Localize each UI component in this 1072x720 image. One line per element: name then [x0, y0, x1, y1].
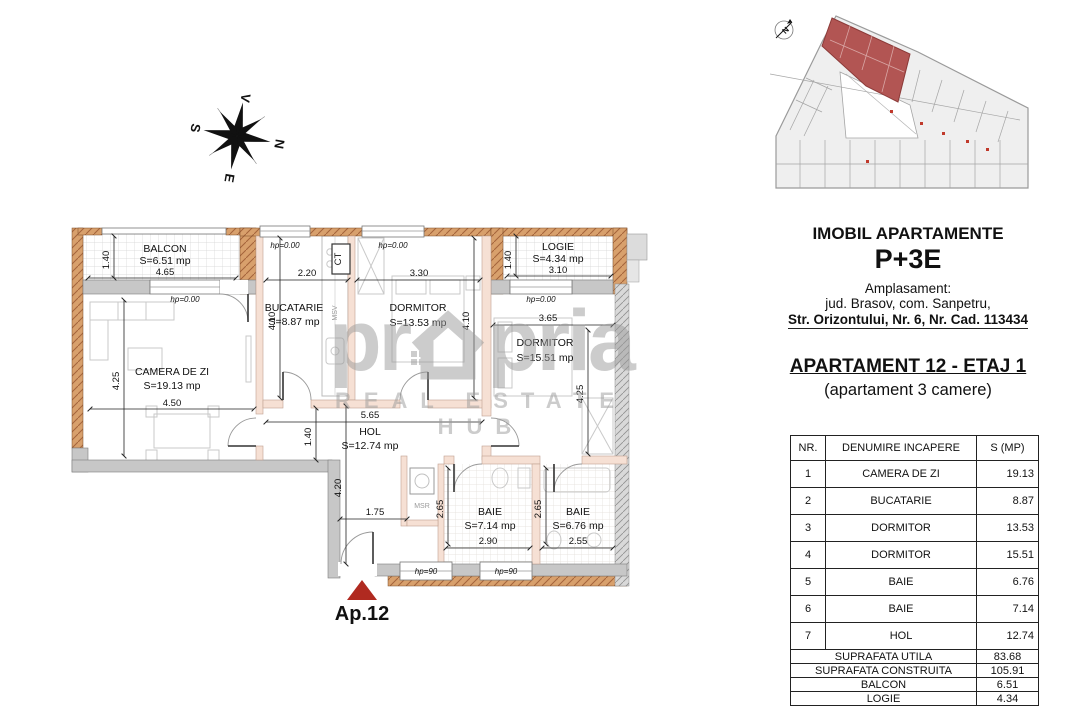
apartment-title-block: APARTAMENT 12 - ETAJ 1 (apartament 3 cam… — [758, 356, 1058, 400]
svg-text:2.65: 2.65 — [435, 500, 446, 519]
svg-text:4.50: 4.50 — [163, 398, 182, 409]
summary-row-logie: LOGIE4.34 — [791, 692, 1039, 706]
header-nr: NR. — [791, 436, 826, 461]
compass-east-label: E — [221, 173, 237, 184]
svg-text:hp=90: hp=90 — [415, 567, 438, 576]
apartment-subtitle: (apartament 3 camere) — [758, 381, 1058, 400]
svg-text:4.25: 4.25 — [575, 385, 586, 404]
svg-text:hp=0.00: hp=0.00 — [526, 295, 556, 304]
svg-text:S=7.14 mp: S=7.14 mp — [464, 520, 515, 532]
svg-text:2.65: 2.65 — [533, 500, 544, 519]
compass-rose-icon: V S N E — [185, 90, 295, 190]
location-line1: jud. Brasov, com. Sanpetru, — [758, 296, 1058, 311]
svg-text:S=15.51 mp: S=15.51 mp — [517, 352, 574, 364]
svg-text:S=6.76 mp: S=6.76 mp — [552, 520, 603, 532]
svg-text:1.75: 1.75 — [366, 507, 385, 518]
header-area: S (MP) — [977, 436, 1039, 461]
svg-text:4.65: 4.65 — [156, 267, 175, 278]
compass-west-label: V — [237, 93, 253, 104]
svg-text:BAIE: BAIE — [478, 506, 502, 518]
svg-text:S=19.13 mp: S=19.13 mp — [144, 380, 201, 392]
table-row: 3DORMITOR13.53 — [791, 515, 1039, 542]
svg-text:N: N — [780, 25, 791, 36]
svg-text:2.20: 2.20 — [298, 268, 317, 279]
svg-text:LOGIE: LOGIE — [542, 241, 574, 253]
svg-text:hp=0.00: hp=0.00 — [378, 241, 408, 250]
compass-north-label: N — [271, 138, 287, 150]
svg-text:BAIE: BAIE — [566, 506, 590, 518]
site-north-icon: N — [775, 19, 793, 39]
svg-text:4.10: 4.10 — [267, 312, 278, 331]
location-label: Amplasament: — [758, 281, 1058, 296]
svg-text:4.10: 4.10 — [461, 312, 472, 331]
svg-text:1.40: 1.40 — [101, 251, 112, 270]
header-name: DENUMIRE INCAPERE — [826, 436, 977, 461]
summary-row-balcon: BALCON6.51 — [791, 678, 1039, 692]
building-title: IMOBIL APARTAMENTE — [758, 224, 1058, 244]
msr-label: MSR — [414, 503, 430, 510]
room-areas-table: NR. DENUMIRE INCAPERE S (MP) 1CAMERA DE … — [790, 435, 1039, 706]
svg-text:4.25: 4.25 — [111, 372, 122, 391]
svg-text:4.20: 4.20 — [333, 479, 344, 498]
svg-text:S=13.53 mp: S=13.53 mp — [390, 317, 447, 329]
svg-text:hp=0.00: hp=0.00 — [270, 241, 300, 250]
svg-text:S=6.51 mp: S=6.51 mp — [139, 255, 190, 267]
info-panel: IMOBIL APARTAMENTE P+3E Amplasament: jud… — [758, 224, 1058, 329]
apartment-marker-triangle-icon — [347, 580, 377, 600]
svg-text:CAMERA DE ZI: CAMERA DE ZI — [135, 366, 209, 378]
apartment-title: APARTAMENT 12 - ETAJ 1 — [758, 356, 1058, 378]
summary-row-suprafata-utila: SUPRAFATA UTILA83.68 — [791, 650, 1039, 664]
svg-text:CT: CT — [333, 252, 344, 265]
svg-text:DORMITOR: DORMITOR — [390, 302, 447, 314]
table-row: 6BAIE7.14 — [791, 596, 1039, 623]
apartment-floor-plan: MSV — [70, 218, 670, 630]
table-row: 1CAMERA DE ZI19.13 — [791, 461, 1039, 488]
svg-text:HOL: HOL — [359, 426, 381, 438]
svg-text:S=12.74 mp: S=12.74 mp — [342, 440, 399, 452]
summary-row-suprafata-construita: SUPRAFATA CONSTRUITA105.91 — [791, 664, 1039, 678]
svg-text:3.65: 3.65 — [539, 313, 558, 324]
svg-text:2.55: 2.55 — [569, 536, 588, 547]
svg-text:1.40: 1.40 — [503, 251, 514, 270]
svg-text:S=4.34 mp: S=4.34 mp — [532, 253, 583, 265]
table-row: 7HOL12.74 — [791, 623, 1039, 650]
table-row: 4DORMITOR15.51 — [791, 542, 1039, 569]
svg-text:3.10: 3.10 — [549, 265, 568, 276]
location-line2: Str. Orizontului, Nr. 6, Nr. Cad. 113434 — [788, 312, 1028, 329]
apartment-label: Ap.12 — [335, 603, 389, 625]
table-row: 5BAIE6.76 — [791, 569, 1039, 596]
floor-plan-page: { "compass": {"north": "N", "south": "S"… — [0, 0, 1072, 720]
svg-text:DORMITOR: DORMITOR — [517, 337, 574, 349]
msv-label: MSV — [332, 305, 339, 321]
svg-text:2.90: 2.90 — [479, 536, 498, 547]
building-outline — [776, 16, 1028, 188]
svg-text:3.30: 3.30 — [410, 268, 429, 279]
svg-text:5.65: 5.65 — [361, 410, 380, 421]
compass-star — [198, 97, 277, 176]
svg-text:1.40: 1.40 — [303, 428, 314, 447]
svg-text:hp=90: hp=90 — [495, 567, 518, 576]
ct-boiler-box: CT — [332, 244, 350, 274]
washer-niche: MSR — [410, 468, 434, 510]
svg-text:BALCON: BALCON — [143, 243, 186, 255]
building-regime: P+3E — [758, 244, 1058, 274]
svg-text:hp=0.00: hp=0.00 — [170, 295, 200, 304]
apartment-marker: Ap.12 — [335, 580, 389, 625]
compass-south-label: S — [187, 123, 203, 134]
table-header-row: NR. DENUMIRE INCAPERE S (MP) — [791, 436, 1039, 461]
building-site-plan: N — [770, 10, 1065, 210]
table-row: 2BUCATARIE8.87 — [791, 488, 1039, 515]
